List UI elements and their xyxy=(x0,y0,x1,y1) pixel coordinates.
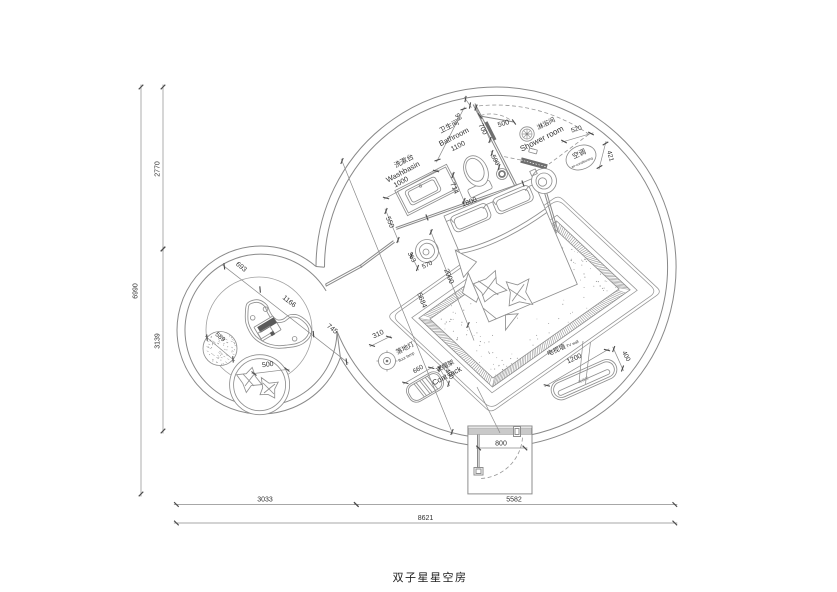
svg-text:421: 421 xyxy=(605,150,615,163)
svg-text:5582: 5582 xyxy=(506,497,522,504)
svg-text:3139: 3139 xyxy=(155,333,162,349)
svg-text:500: 500 xyxy=(262,361,275,369)
svg-text:550: 550 xyxy=(384,216,395,230)
svg-text:400: 400 xyxy=(620,350,631,363)
svg-text:1200: 1200 xyxy=(566,353,583,366)
svg-text:2000: 2000 xyxy=(442,268,454,285)
svg-text:6990: 6990 xyxy=(133,283,140,299)
svg-text:660: 660 xyxy=(412,364,425,376)
svg-text:693: 693 xyxy=(234,261,248,274)
svg-text:1166: 1166 xyxy=(281,294,297,309)
svg-text:电视墙: 电视墙 xyxy=(545,341,567,357)
svg-text:520: 520 xyxy=(570,125,583,135)
svg-text:8621: 8621 xyxy=(418,515,434,522)
svg-text:5684: 5684 xyxy=(415,292,427,309)
svg-text:500: 500 xyxy=(497,119,510,129)
svg-text:310: 310 xyxy=(372,329,386,340)
svg-text:2770: 2770 xyxy=(155,161,162,177)
svg-text:800: 800 xyxy=(495,441,507,448)
svg-text:3033: 3033 xyxy=(257,497,273,504)
svg-text:双子星星空房: 双子星星空房 xyxy=(393,570,468,584)
svg-text:TV wall: TV wall xyxy=(565,339,579,349)
